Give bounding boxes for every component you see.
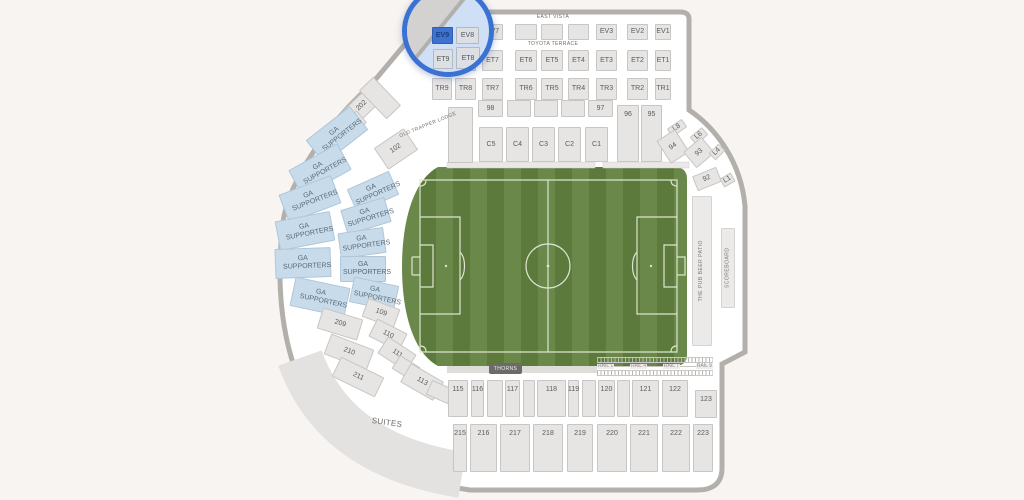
section-et4[interactable]: ET4 <box>568 50 589 71</box>
section-tr6[interactable]: TR6 <box>515 78 537 100</box>
magnifier-section-EV9[interactable]: EV9 <box>432 27 453 44</box>
section-unlabeled[interactable] <box>487 380 503 417</box>
section-label: 93 <box>694 147 705 158</box>
section-label: TR7 <box>486 85 499 93</box>
section-label: THE PUB BEER PATIO <box>699 240 705 301</box>
section-label: TR6 <box>519 85 532 93</box>
section-label: GA SUPPORTERS <box>283 255 324 272</box>
section-tr9[interactable]: TR9 <box>432 78 452 100</box>
section-unlabeled[interactable] <box>507 100 531 117</box>
section-label: 118 <box>546 386 557 394</box>
section-label: TR8 <box>459 85 472 93</box>
section-tr4[interactable]: TR4 <box>568 78 589 100</box>
section-et1[interactable]: ET1 <box>655 50 671 71</box>
section-label: C3 <box>539 141 548 149</box>
section-label: TR3 <box>600 85 613 93</box>
section-label: 223 <box>697 430 709 438</box>
section-scoreboard[interactable]: SCOREBOARD <box>721 228 735 308</box>
section-unlabeled[interactable] <box>617 380 630 417</box>
section-222[interactable]: 222 <box>662 424 690 472</box>
section-ga-supporters[interactable]: GA SUPPORTERS <box>289 277 350 318</box>
section-label: 109 <box>374 307 388 318</box>
section-label: 98 <box>487 105 495 113</box>
section-unlabeled[interactable] <box>515 24 537 40</box>
section-97[interactable]: 97 <box>588 100 613 117</box>
section-tr3[interactable]: TR3 <box>596 78 617 100</box>
magnifier-section-EV8[interactable]: EV8 <box>456 27 479 44</box>
section-label: 122 <box>669 386 681 394</box>
rail-ticks-bottom <box>597 370 713 376</box>
section-98[interactable]: 98 <box>478 100 503 117</box>
section-label: ET4 <box>572 57 585 65</box>
east-vista-label: EAST VISTA <box>493 14 613 20</box>
section-c4[interactable]: C4 <box>506 127 529 162</box>
section-tr7[interactable]: TR7 <box>482 78 503 100</box>
section-216[interactable]: 216 <box>470 424 497 472</box>
section-221[interactable]: 221 <box>630 424 658 472</box>
section-label: 116 <box>472 386 483 394</box>
section-label: ET6 <box>520 57 533 65</box>
section-label: TR4 <box>572 85 585 93</box>
section-the-pub-beer-patio[interactable]: THE PUB BEER PATIO <box>692 196 712 346</box>
section-et2[interactable]: ET2 <box>627 50 648 71</box>
section-label: TR9 <box>435 85 448 93</box>
section-92[interactable]: 92 <box>692 167 722 192</box>
section-unlabeled[interactable] <box>541 24 563 40</box>
section-label: 97 <box>597 105 605 113</box>
section-label: EV3 <box>600 28 613 36</box>
section-unlabeled[interactable] <box>534 100 558 117</box>
section-tr8[interactable]: TR8 <box>455 78 476 100</box>
section-label: ET3 <box>600 57 613 65</box>
magnifier-section-ET8[interactable]: ET8 <box>456 47 480 69</box>
rail-label: RAIL 4 <box>630 364 647 369</box>
section-label: TR2 <box>631 85 644 93</box>
section-218[interactable]: 218 <box>533 424 563 472</box>
section-label: EV1 <box>656 28 669 36</box>
section-label: L4 <box>712 147 723 158</box>
section-121[interactable]: 121 <box>632 380 659 417</box>
section-l1[interactable]: L1 <box>719 172 735 187</box>
section-118[interactable]: 118 <box>537 380 566 417</box>
section-label: 220 <box>606 430 618 438</box>
section-label: TR1 <box>656 85 669 93</box>
magnifier-section-ET9[interactable]: ET9 <box>433 49 453 69</box>
section-label: 216 <box>478 430 490 438</box>
toyota-terrace-label: TOYOTA TERRACE <box>493 41 613 47</box>
section-c5[interactable]: C5 <box>479 127 503 162</box>
section-label: GA SUPPORTERS <box>345 203 388 229</box>
section-c2[interactable]: C2 <box>558 127 581 162</box>
section-ga-supporters[interactable]: GA SUPPORTERS <box>274 247 331 279</box>
section-120[interactable]: 120 <box>598 380 615 417</box>
section-label: 113 <box>415 376 429 388</box>
section-ev1[interactable]: EV1 <box>655 24 671 40</box>
section-rails[interactable]: RAIL 1RAIL 4RAIL 7RAIL 9 <box>597 357 713 376</box>
section-label: TR5 <box>545 85 558 93</box>
section-label: 115 <box>452 386 463 394</box>
section-label: 222 <box>670 430 682 438</box>
section-217[interactable]: 217 <box>500 424 530 472</box>
section-label: C2 <box>565 141 574 149</box>
section-label: GA SUPPORTERS <box>299 285 341 308</box>
section-label: 210 <box>342 346 356 357</box>
section-label: 96 <box>624 111 632 119</box>
section-label: 123 <box>700 396 712 404</box>
section-label: SCOREBOARD <box>725 248 731 289</box>
section-ga-supporters[interactable]: GA SUPPORTERS <box>337 227 386 259</box>
magnifier[interactable]: EV9 EV8 ET9 ET8 <box>402 0 494 77</box>
section-119[interactable]: 119 <box>568 380 579 417</box>
section-96[interactable]: 96 <box>617 105 639 162</box>
section-label: 120 <box>601 386 613 394</box>
section-unlabeled[interactable] <box>568 24 589 40</box>
section-122[interactable]: 122 <box>662 380 688 417</box>
section-c1[interactable]: C1 <box>585 127 608 162</box>
section-tr2[interactable]: TR2 <box>627 78 648 100</box>
section-label: 95 <box>648 111 656 119</box>
rail-label: RAIL 1 <box>597 364 614 369</box>
thorns-badge: THORNS <box>489 363 522 374</box>
section-ev3[interactable]: EV3 <box>596 24 617 40</box>
section-label: ET5 <box>546 57 559 65</box>
section-label: C5 <box>487 141 496 149</box>
section-l4[interactable]: L4 <box>709 144 726 161</box>
section-label: 121 <box>640 386 652 394</box>
section-220[interactable]: 220 <box>597 424 627 472</box>
section-label: GA SUPPORTERS <box>343 261 383 276</box>
section-label: 92 <box>702 174 712 184</box>
section-115[interactable]: 115 <box>448 380 468 417</box>
section-label: EV2 <box>631 28 644 36</box>
section-et5[interactable]: ET5 <box>541 50 563 71</box>
rail-label: RAIL 7 <box>663 364 680 369</box>
section-label: 209 <box>333 319 346 330</box>
section-95[interactable]: 95 <box>641 105 662 162</box>
stadium-seat-map: EV9EV8EV7EV3EV2EV1ET9ET8ET7ET6ET5ET4ET3E… <box>0 0 1024 500</box>
rail-label: RAIL 9 <box>696 364 713 369</box>
section-label: GA SUPPORTERS <box>289 185 332 214</box>
section-label: 219 <box>574 430 586 438</box>
section-label: C4 <box>513 141 522 149</box>
section-ga-supporters[interactable]: GA SUPPORTERS <box>275 211 336 251</box>
section-223[interactable]: 223 <box>693 424 713 472</box>
section-label: ET1 <box>657 57 670 65</box>
section-ev2[interactable]: EV2 <box>627 24 648 40</box>
section-label: 94 <box>668 141 679 152</box>
section-tr1[interactable]: TR1 <box>655 78 671 100</box>
section-unlabeled[interactable] <box>523 380 535 417</box>
section-219[interactable]: 219 <box>567 424 593 472</box>
section-tr5[interactable]: TR5 <box>541 78 563 100</box>
section-label: GA SUPPORTERS <box>341 233 383 254</box>
section-c3[interactable]: C3 <box>532 127 555 162</box>
sections-layer: EV9EV8EV7EV3EV2EV1ET9ET8ET7ET6ET5ET4ET3E… <box>0 0 1024 500</box>
section-et6[interactable]: ET6 <box>515 50 537 71</box>
section-label: 119 <box>568 386 579 394</box>
section-209[interactable]: 209 <box>317 307 364 340</box>
section-label: L1 <box>722 175 733 186</box>
section-label: 221 <box>638 430 650 438</box>
section-unlabeled[interactable] <box>582 380 596 417</box>
section-117[interactable]: 117 <box>505 380 520 417</box>
section-215[interactable]: 215 <box>453 424 467 472</box>
section-116[interactable]: 116 <box>471 380 484 417</box>
section-label: GA SUPPORTERS <box>284 220 326 243</box>
section-label: 102 <box>389 143 403 156</box>
section-label: C1 <box>592 141 601 149</box>
section-123[interactable]: 123 <box>695 390 717 418</box>
section-label: 217 <box>509 430 521 438</box>
section-unlabeled[interactable] <box>561 100 585 117</box>
section-label: 211 <box>351 371 364 383</box>
section-label: 117 <box>507 386 518 394</box>
section-label: 218 <box>542 430 554 438</box>
section-et3[interactable]: ET3 <box>596 50 617 71</box>
section-label: 215 <box>454 430 466 438</box>
section-label: ET2 <box>631 57 644 65</box>
thorns-strip <box>447 366 597 373</box>
